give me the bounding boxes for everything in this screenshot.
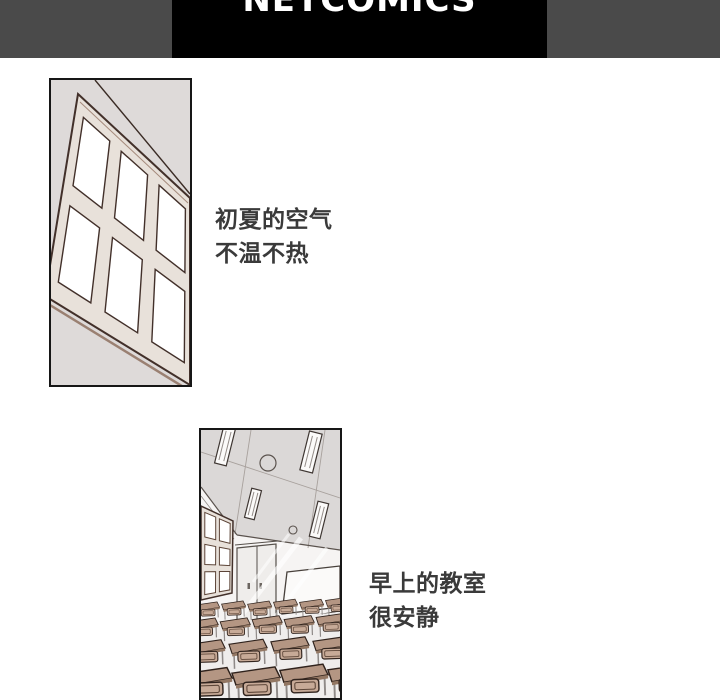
netcomics-logo-text: NETCOMICS (172, 0, 547, 20)
caption-panel-1: 初夏的空气 不温不热 (215, 203, 333, 271)
panel-classroom-artwork (201, 430, 340, 698)
netcomics-logo-box: NETCOMICS (172, 0, 547, 58)
caption-panel-2-line-2: 很安静 (369, 601, 487, 635)
caption-panel-2-line-1: 早上的教室 (369, 567, 487, 601)
panel-windows-artwork (51, 80, 190, 385)
caption-panel-2: 早上的教室 很安静 (369, 567, 487, 635)
comic-page: NETCOMICS 初夏的空气 不温不热 (0, 0, 720, 700)
caption-panel-1-line-2: 不温不热 (215, 237, 333, 271)
caption-panel-1-line-1: 初夏的空气 (215, 203, 333, 237)
panel-windows (49, 78, 192, 387)
panel-classroom (199, 428, 342, 700)
site-header: NETCOMICS (0, 0, 720, 58)
